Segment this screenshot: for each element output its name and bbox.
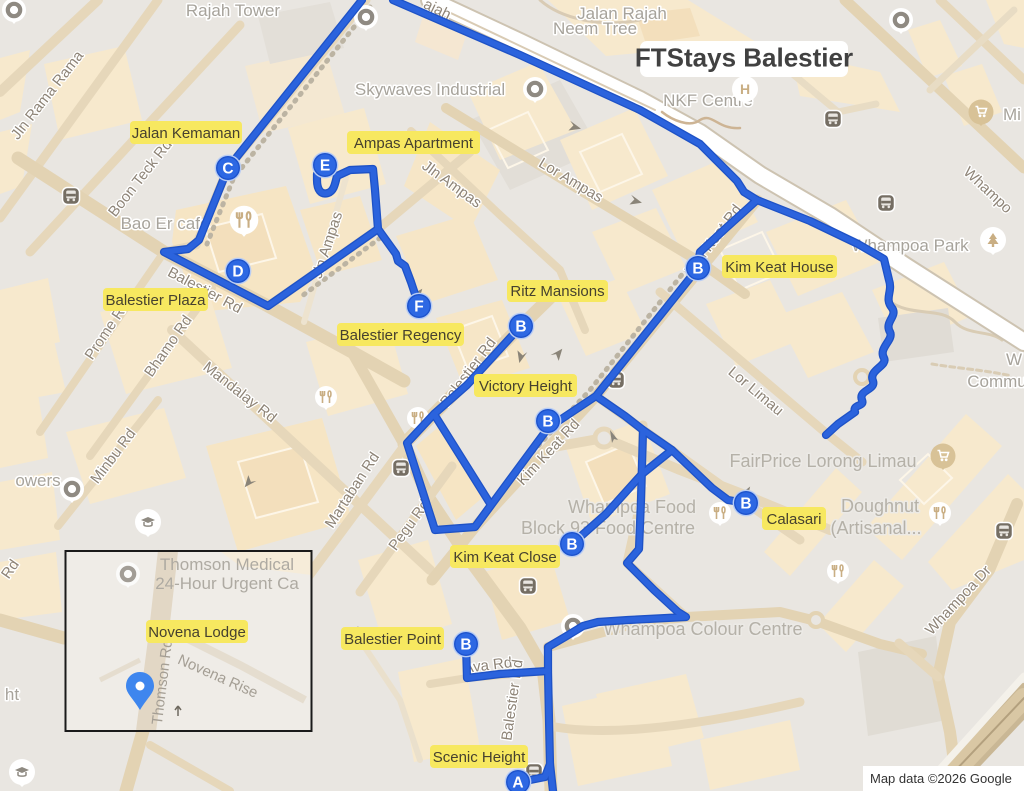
svg-text:24-Hour Urgent Ca: 24-Hour Urgent Ca <box>155 574 299 593</box>
svg-text:owers: owers <box>15 471 60 490</box>
svg-text:Whampoa Food: Whampoa Food <box>568 497 696 517</box>
svg-text:Balestier Point: Balestier Point <box>344 631 442 648</box>
svg-text:W: W <box>1006 350 1022 369</box>
svg-text:ht: ht <box>5 685 19 704</box>
svg-text:(Artisanal...: (Artisanal... <box>830 518 921 538</box>
svg-text:B: B <box>566 537 577 554</box>
svg-text:B: B <box>460 637 471 654</box>
svg-text:Mi: Mi <box>1003 105 1021 124</box>
svg-text:E: E <box>320 158 330 175</box>
svg-text:A: A <box>512 775 523 792</box>
svg-text:Novena Lodge: Novena Lodge <box>148 624 246 641</box>
svg-text:Victory Height: Victory Height <box>479 378 573 395</box>
svg-text:FTStays Balestier: FTStays Balestier <box>635 43 853 73</box>
svg-text:Block 93 Food Centre: Block 93 Food Centre <box>521 518 695 538</box>
svg-text:Doughnut: Doughnut <box>841 496 919 516</box>
svg-text:F: F <box>414 299 423 316</box>
svg-text:Thomson Medical: Thomson Medical <box>160 555 294 574</box>
svg-text:Ampas Apartment: Ampas Apartment <box>354 135 474 152</box>
svg-text:B: B <box>692 261 703 278</box>
svg-text:Jalan Rajah: Jalan Rajah <box>577 4 667 23</box>
svg-text:Rajah Tower: Rajah Tower <box>186 1 281 20</box>
svg-text:B: B <box>542 414 553 431</box>
svg-text:Scenic Height: Scenic Height <box>433 749 526 766</box>
svg-text:Ritz Mansions: Ritz Mansions <box>510 283 604 300</box>
svg-text:Map data ©2026 Google: Map data ©2026 Google <box>870 771 1012 786</box>
svg-text:Kim Keat Close: Kim Keat Close <box>453 549 556 566</box>
svg-text:Skywaves Industrial: Skywaves Industrial <box>355 80 505 99</box>
svg-text:Kim Keat House: Kim Keat House <box>725 259 833 276</box>
svg-text:Calasari: Calasari <box>766 511 821 528</box>
svg-text:C: C <box>222 161 233 178</box>
svg-text:B: B <box>515 319 526 336</box>
svg-text:FairPrice Lorong Limau: FairPrice Lorong Limau <box>729 451 916 471</box>
svg-text:Commu: Commu <box>967 372 1024 391</box>
svg-text:Bao Er cafe: Bao Er cafe <box>121 214 210 233</box>
svg-text:D: D <box>232 264 243 281</box>
svg-text:B: B <box>740 496 751 513</box>
svg-text:Balestier Regency: Balestier Regency <box>340 327 462 344</box>
svg-text:Balestier Plaza: Balestier Plaza <box>105 292 206 309</box>
svg-text:Jalan Kemaman: Jalan Kemaman <box>132 125 240 142</box>
